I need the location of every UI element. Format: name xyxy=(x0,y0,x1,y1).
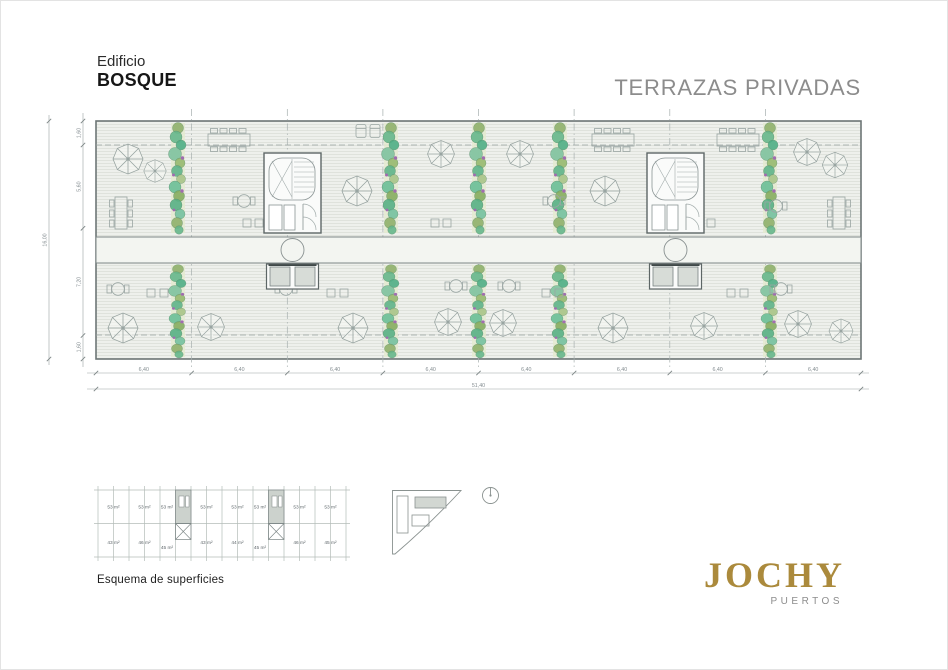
dim-label: 6,40 xyxy=(139,367,149,373)
area-label: 46 m² xyxy=(293,540,306,546)
plant-strip xyxy=(551,265,569,358)
area-label: 53 m² xyxy=(324,505,337,511)
plant-strip xyxy=(551,123,569,235)
plan-sheet: Edificio BOSQUE TERRAZAS PRIVADAS xyxy=(0,0,948,670)
floor-plan xyxy=(96,109,861,369)
area-label: 53 m² xyxy=(200,505,213,511)
parasol-icon xyxy=(490,310,517,337)
parasol-icon xyxy=(108,313,138,343)
plant-strip xyxy=(761,123,779,235)
dim-label: 1,60 xyxy=(77,128,83,138)
parasol-icon xyxy=(435,309,462,336)
parasol-icon xyxy=(113,144,143,174)
parasol-icon xyxy=(590,176,620,206)
stair-core-left xyxy=(264,153,321,289)
parasol-icon xyxy=(785,311,812,338)
parasol-icon xyxy=(794,139,821,166)
area-label: 53 m² xyxy=(138,505,151,511)
stair-icon xyxy=(264,153,321,233)
plant-strip xyxy=(761,265,779,358)
parasol-icon xyxy=(829,319,853,343)
dim-label: 7,20 xyxy=(77,277,83,287)
parasol-icon xyxy=(822,152,848,178)
dim-label: 6,40 xyxy=(330,367,340,373)
parasol-icon xyxy=(598,313,628,343)
elevator-icon xyxy=(267,264,319,289)
plant-strip xyxy=(169,123,187,235)
parasol-icon xyxy=(338,313,368,343)
parasol-icon xyxy=(342,176,372,206)
area-label: 53 m² xyxy=(293,505,306,511)
brand-name: JOCHY xyxy=(704,557,845,593)
area-label: 46 m² xyxy=(138,540,151,546)
area-label: 53 m² xyxy=(107,505,120,511)
parasol-icon xyxy=(198,314,225,341)
brand-subtitle: PUERTOS xyxy=(704,596,843,607)
brand-logo: JOCHY PUERTOS xyxy=(704,557,845,607)
central-corridor xyxy=(96,237,861,263)
plant-strip xyxy=(382,123,400,235)
site-key xyxy=(393,488,499,555)
area-label: 45 m² xyxy=(324,540,337,546)
area-label: 53 m² xyxy=(254,505,267,511)
parasol-icon xyxy=(691,313,718,340)
schema-caption: Esquema de superficies xyxy=(97,574,224,586)
plant-strip xyxy=(470,265,488,358)
dim-total-width: 51,40 xyxy=(472,383,485,389)
surface-schema: 53 m² 53 m² 53 m² 53 m² 53 m² 53 m² 53 m… xyxy=(94,486,350,561)
dim-label: 6,40 xyxy=(808,367,818,373)
elevator-icon xyxy=(650,264,702,289)
dim-label: 6,40 xyxy=(426,367,436,373)
dim-label: 5,60 xyxy=(77,181,83,191)
area-label: 53 m² xyxy=(161,505,174,511)
parasol-icon xyxy=(428,141,455,168)
stair-icon xyxy=(647,153,704,233)
dim-label: 6,40 xyxy=(712,367,722,373)
schema-core xyxy=(176,490,285,540)
area-label: 45 m² xyxy=(254,545,267,551)
dim-label: 6,40 xyxy=(234,367,244,373)
dim-label: 1,60 xyxy=(77,342,83,352)
area-label: 43 m² xyxy=(200,540,213,546)
stair-core-right xyxy=(647,153,704,289)
area-label: 53 m² xyxy=(231,505,244,511)
area-label: 45 m² xyxy=(161,545,174,551)
plant-strip xyxy=(470,123,488,235)
dim-label: 6,40 xyxy=(617,367,627,373)
plant-strip xyxy=(169,265,187,358)
area-label: 44 m² xyxy=(231,540,244,546)
parasol-icon xyxy=(507,141,534,168)
plant-strip xyxy=(382,265,400,358)
parasol-icon xyxy=(144,160,167,183)
dim-label: 6,40 xyxy=(521,367,531,373)
site-building-highlighted xyxy=(415,497,446,508)
area-label: 43 m² xyxy=(107,540,120,546)
dim-total-height: 16,00 xyxy=(43,233,49,246)
north-indicator-icon xyxy=(483,488,499,504)
